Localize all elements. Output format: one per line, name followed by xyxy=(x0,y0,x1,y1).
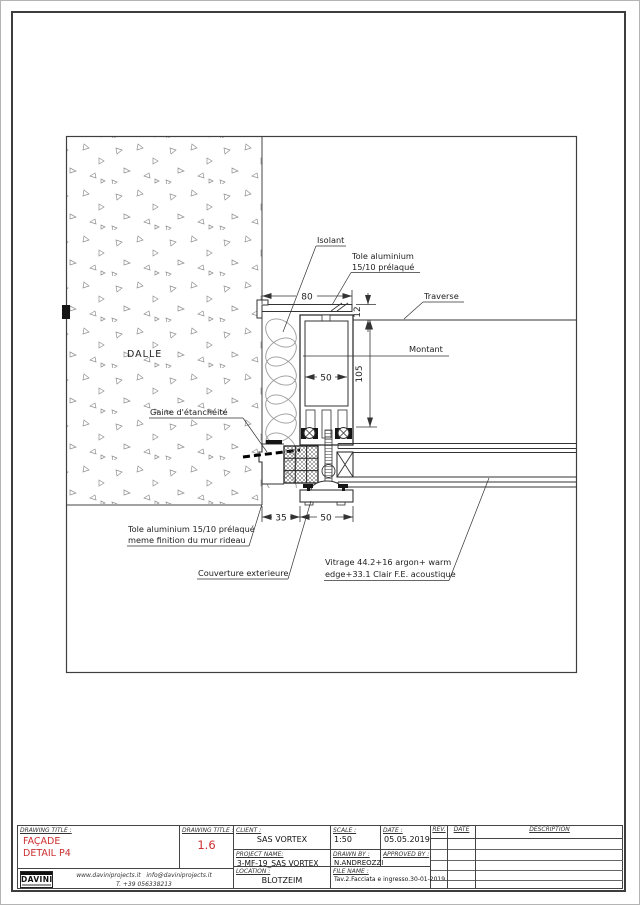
drawing-number: 1.6 xyxy=(180,834,233,852)
approved-by-cell: APPROVED BY : xyxy=(381,850,431,867)
drawing-sheet: DALLE xyxy=(0,0,640,905)
drawn-by-value: N.ANDREOZZI xyxy=(331,858,380,867)
callout-tole-top: Tole aluminium 15/10 prélaqué xyxy=(332,251,420,305)
bottom-plate xyxy=(300,490,353,502)
callout-traverse: Traverse xyxy=(404,291,464,319)
callout-tole-top-line1: Tole aluminium xyxy=(351,251,414,261)
contact-web: www.daviniprojects.it xyxy=(76,872,140,879)
project-name-label: PROJECT NAME: xyxy=(234,850,330,858)
rev-label: REV. xyxy=(431,826,447,833)
rev-date-header-cell: DATE xyxy=(448,826,476,839)
logo-sub-strip xyxy=(22,884,51,886)
title-block: DRAWING TITLE : FAÇADE DETAIL P4 DRAWING… xyxy=(17,825,623,889)
scale-label: SCALE : xyxy=(331,826,380,834)
facade-detail-drawing: DALLE xyxy=(0,0,640,905)
dimension-35: 35 xyxy=(262,506,353,524)
callout-couverture-label: Couverture exterieure xyxy=(198,568,288,578)
davini-logo: DAVINI xyxy=(20,871,53,888)
callout-traverse-label: Traverse xyxy=(423,291,459,301)
logo-row: DAVINI www.daviniprojects.it info@davini… xyxy=(18,869,234,889)
dim-12: 12 xyxy=(353,306,363,317)
callout-vitrage-line2: edge+33.1 Clair F.E. acoustique xyxy=(325,569,456,579)
description-column xyxy=(476,839,623,889)
scale-cell: SCALE : 1:50 xyxy=(331,826,381,850)
contact-email: info@daviniprojects.it xyxy=(146,872,211,879)
screw-right xyxy=(335,428,352,440)
client-value: SAS VORTEX xyxy=(234,834,330,844)
callout-vitrage-line1: Vitrage 44.2+16 argon+ warm xyxy=(325,557,451,567)
file-name-cell: FILE NAME : Tav.2.Facciata e ingresso.30… xyxy=(331,867,431,889)
description-header-cell: DESCRIPTION xyxy=(476,826,623,839)
project-name-cell: PROJECT NAME: 3-MF-19_SAS VORTEX xyxy=(234,850,331,867)
client-label: CLIENT : xyxy=(234,826,330,834)
concrete-slab: DALLE xyxy=(62,137,262,505)
glazing-band xyxy=(337,444,576,488)
wall-label: DALLE xyxy=(127,349,162,360)
dim-50-bottom: 50 xyxy=(320,514,332,524)
callout-isolant-label: Isolant xyxy=(317,235,345,245)
callout-gaine-label: Gaine d'étanchéité xyxy=(150,407,228,417)
drawing-title-line1: FAÇADE xyxy=(23,836,179,848)
file-name-label: FILE NAME : xyxy=(331,867,430,875)
scale-value: 1:50 xyxy=(331,834,380,844)
dimension-12: 12 xyxy=(353,293,376,332)
drawn-by-label: DRAWN BY : xyxy=(331,850,380,858)
threaded-rod xyxy=(325,430,332,487)
drawing-title-cell: DRAWING TITLE : FAÇADE DETAIL P4 xyxy=(18,826,180,869)
rev-date-column xyxy=(448,839,476,889)
thermal-break-block xyxy=(284,446,318,483)
drawn-by-cell: DRAWN BY : N.ANDREOZZI xyxy=(331,850,381,867)
dim-80: 80 xyxy=(301,293,313,303)
callout-tole-bottom-line2: meme finition du mur rideau xyxy=(128,535,246,545)
drawing-title-line2: DETAIL P4 xyxy=(23,848,179,860)
callout-tole-bottom-line1: Tole aluminium 15/10 prélaqué xyxy=(127,524,255,534)
rev-column xyxy=(431,839,448,889)
approved-by-label: APPROVED BY : xyxy=(381,850,430,858)
drawing-title-label: DRAWING TITLE : xyxy=(18,826,179,834)
contact-phone: T. +39 056338213 xyxy=(56,880,232,889)
location-value: BLOTZEIM xyxy=(234,875,330,885)
dim-50-inner: 50 xyxy=(320,374,332,384)
dimension-80: 80 xyxy=(262,290,352,304)
approved-by-value xyxy=(381,858,430,859)
description-label: DESCRIPTION xyxy=(476,826,623,833)
dim-105: 105 xyxy=(355,365,365,382)
level-mark xyxy=(62,305,70,319)
date-label: DATE : xyxy=(381,826,430,834)
screw-left xyxy=(301,428,318,440)
client-cell: CLIENT : SAS VORTEX xyxy=(234,826,331,850)
callout-tole-top-line2: 15/10 prélaqué xyxy=(352,262,414,272)
drawing-number-cell: DRAWING TITLE : 1.6 xyxy=(180,826,234,869)
contact-info: www.daviniprojects.it info@daviniproject… xyxy=(56,871,232,889)
callout-montant-label: Montant xyxy=(409,344,444,354)
rev-date-label: DATE xyxy=(448,826,475,833)
location-label: LOCATION : xyxy=(234,867,330,875)
date-value: 05.05.2019 xyxy=(381,834,430,844)
file-name-value: Tav.2.Facciata e ingresso.30-01-2019 xyxy=(331,875,430,883)
drawing-number-label: DRAWING TITLE : xyxy=(180,826,233,834)
location-cell: LOCATION : BLOTZEIM xyxy=(234,867,331,889)
dim-35: 35 xyxy=(275,514,286,524)
rev-header-cell: REV. xyxy=(431,826,448,839)
callout-tole-bottom: Tole aluminium 15/10 prélaqué meme finit… xyxy=(127,504,262,546)
logo-text: DAVINI xyxy=(21,875,52,884)
dimension-50-bottom: 50 xyxy=(300,511,353,524)
dimension-105: 105 xyxy=(355,320,377,427)
date-cell: DATE : 05.05.2019 xyxy=(381,826,431,850)
